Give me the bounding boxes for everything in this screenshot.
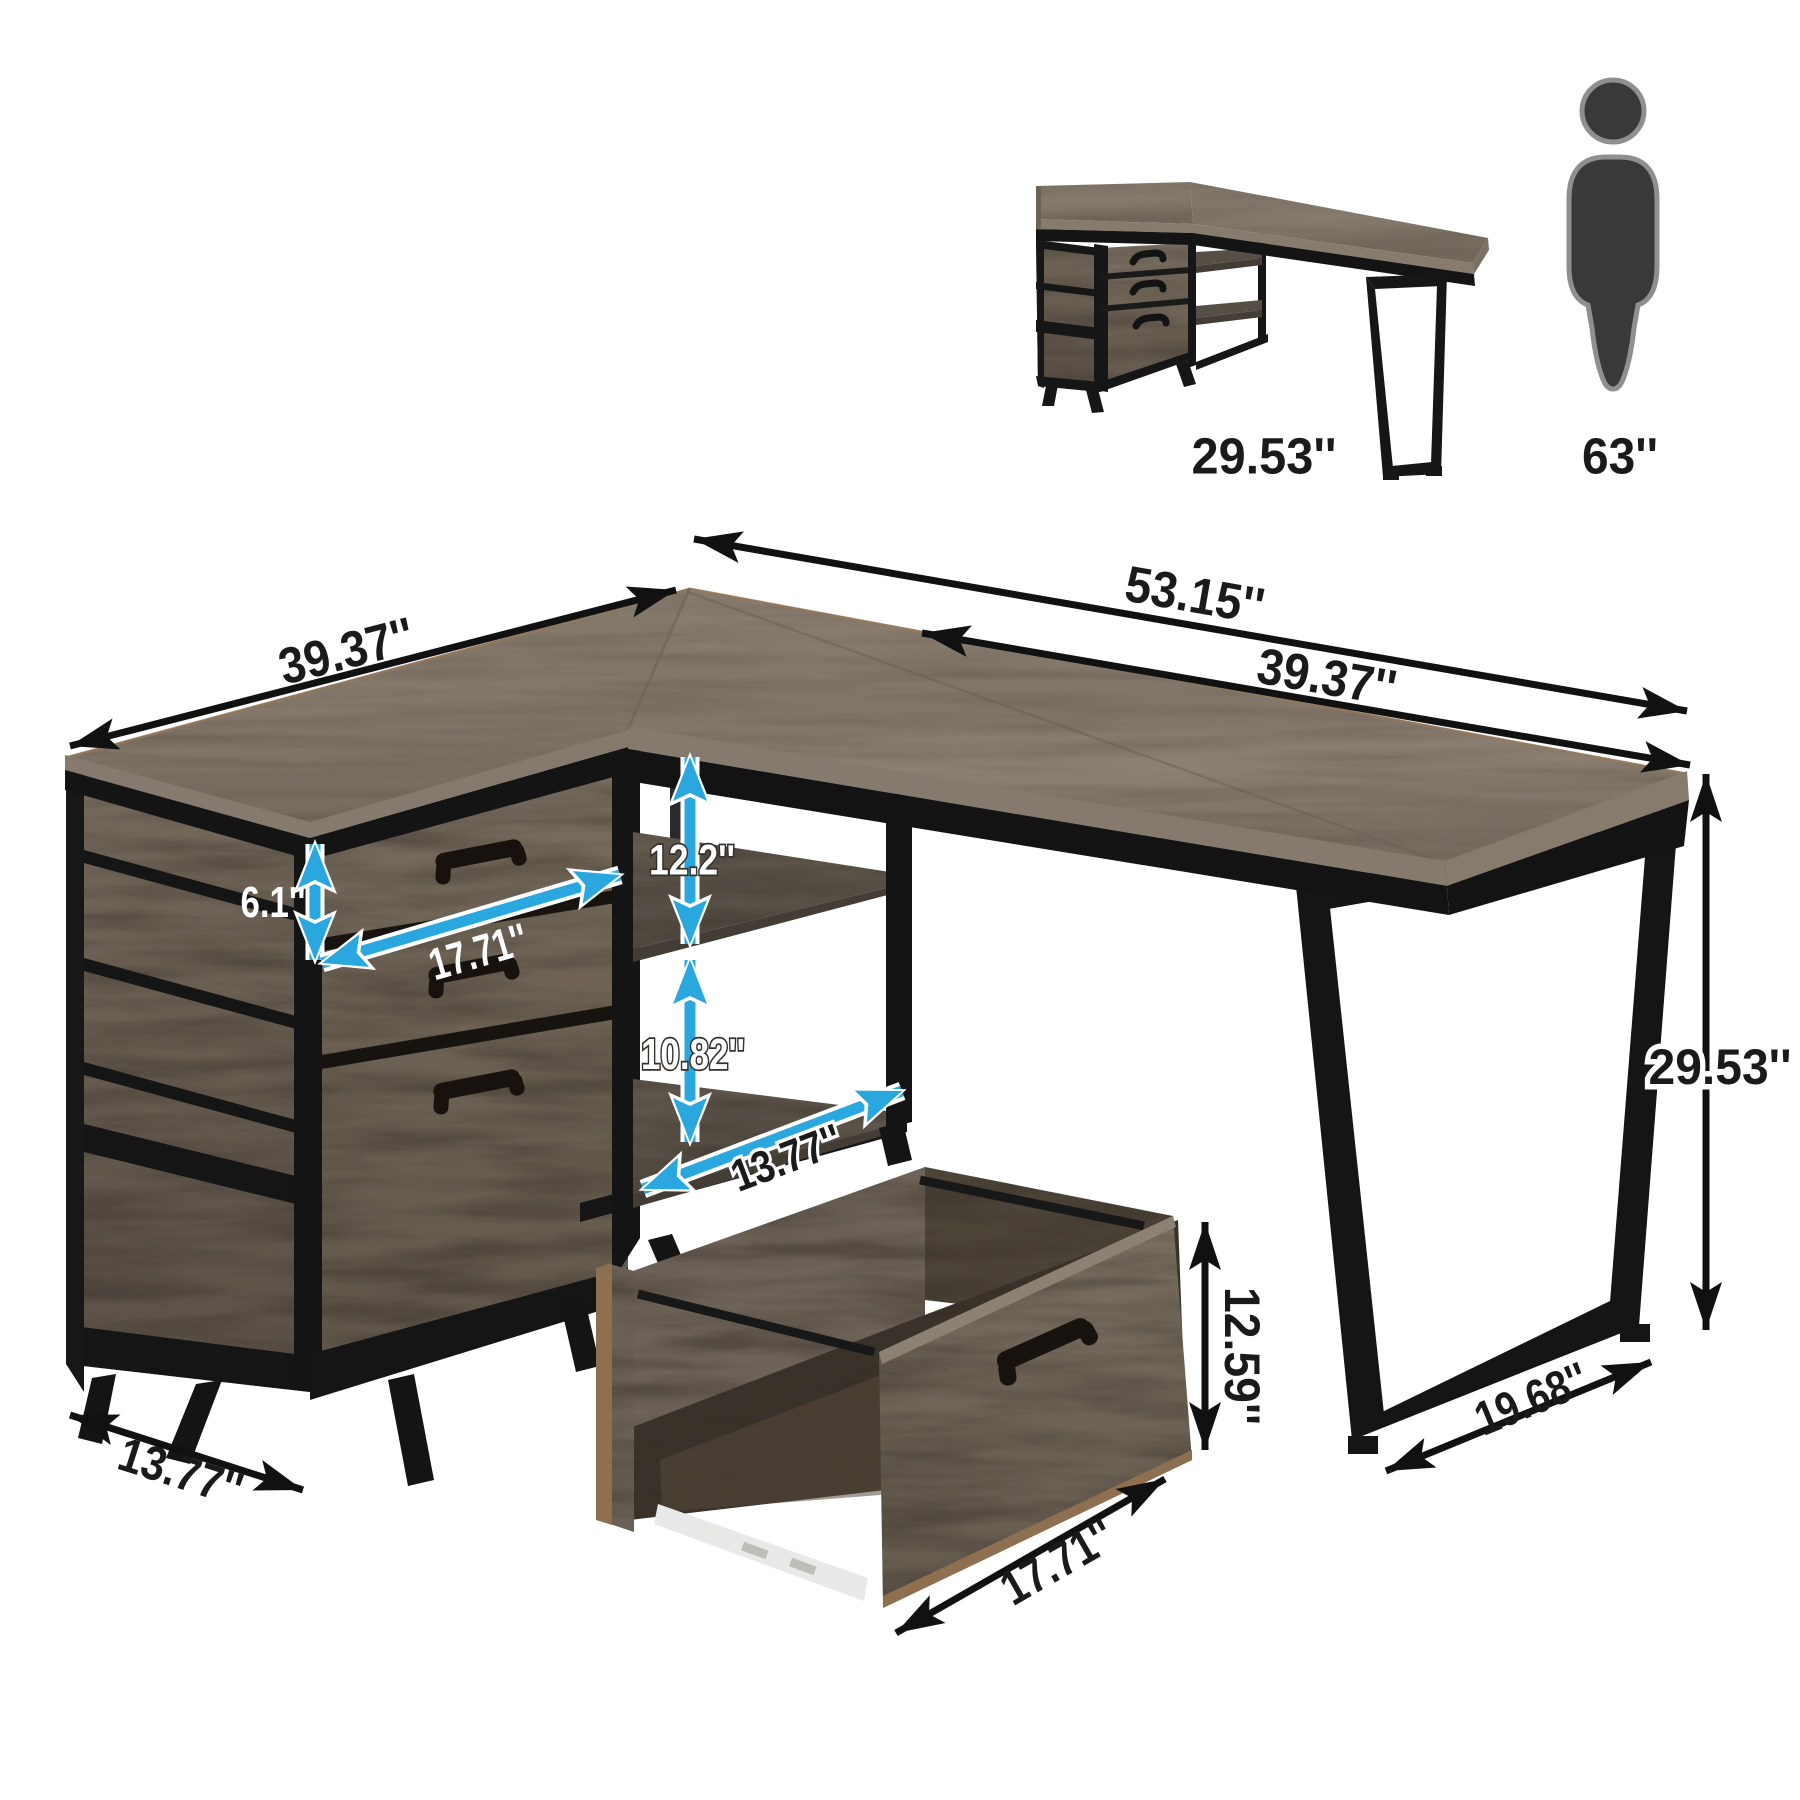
svg-text:29.53'': 29.53'': [1649, 1039, 1792, 1095]
svg-text:10.82'': 10.82'': [641, 1030, 745, 1079]
svg-text:12.2'': 12.2'': [649, 836, 735, 884]
svg-text:12.59'': 12.59'': [1214, 1287, 1270, 1425]
svg-text:63'': 63'': [1582, 427, 1658, 484]
svg-text:6.1'': 6.1'': [241, 878, 306, 927]
svg-text:29.53'': 29.53'': [1192, 427, 1337, 484]
